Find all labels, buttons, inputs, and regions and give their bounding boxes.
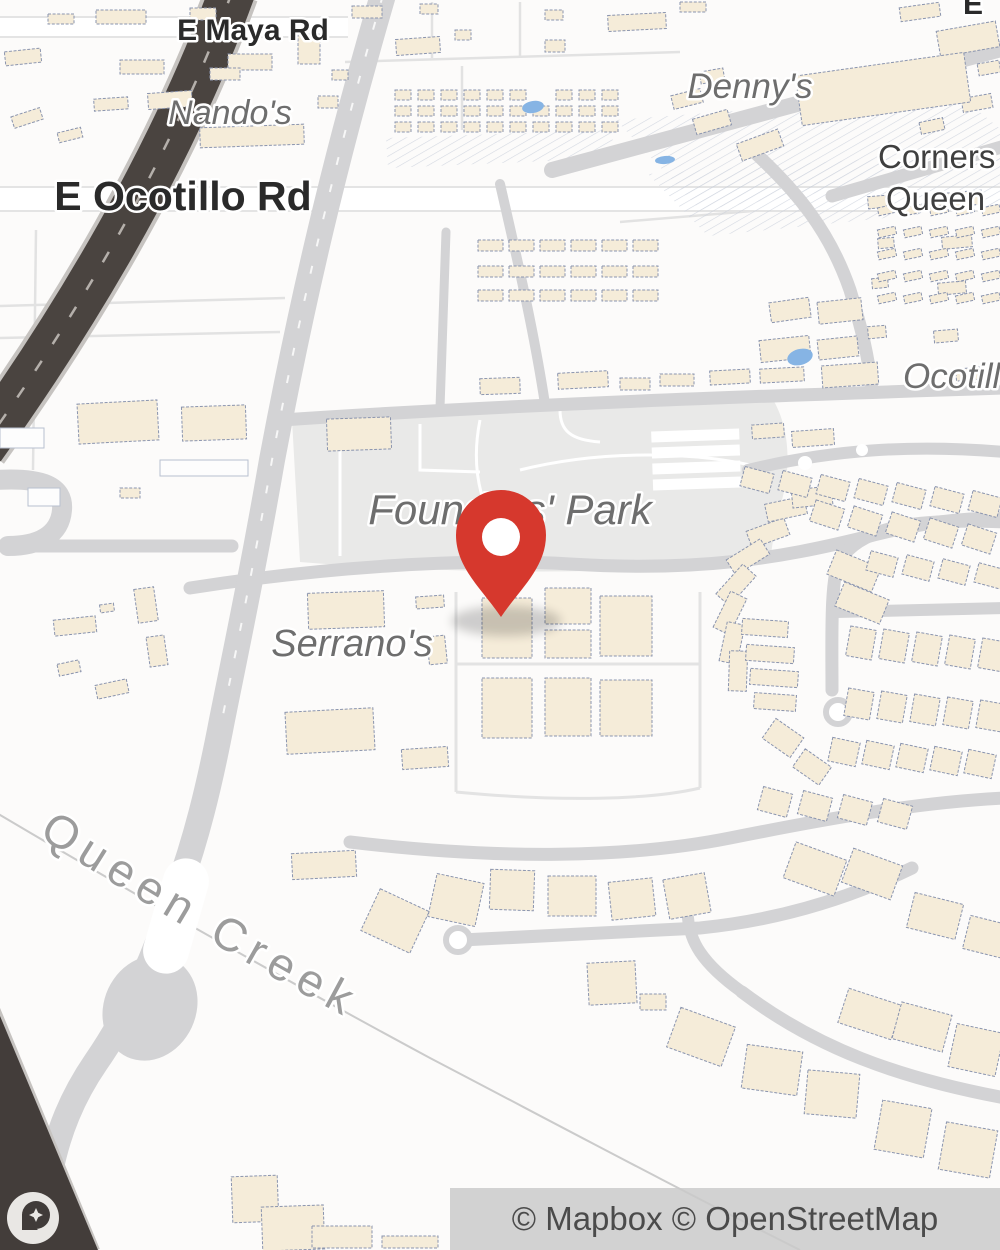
label-dennys: Denny's (687, 67, 812, 106)
label-e-ocotillo-rd: E Ocotillo Rd (54, 173, 311, 219)
pin-shadow (451, 606, 561, 636)
map-canvas[interactable]: E Maya Rd E Ocotillo Rd Nando's Denny's … (0, 0, 1000, 1250)
label-nandos: Nando's (168, 94, 292, 132)
attribution-text: © Mapbox © OpenStreetMap (512, 1200, 939, 1238)
label-ocotillo-right: Ocotillo (903, 357, 1000, 396)
label-queen: Queen (886, 180, 985, 217)
mapbox-logo[interactable] (7, 1192, 59, 1244)
label-corners: Corners (878, 138, 995, 175)
label-e-partial: E (963, 0, 983, 21)
label-serranos: Serrano's (271, 623, 432, 665)
label-e-maya-rd: E Maya Rd (177, 14, 329, 47)
pin-hole (482, 518, 520, 556)
attribution[interactable]: © Mapbox © OpenStreetMap (450, 1188, 1000, 1250)
